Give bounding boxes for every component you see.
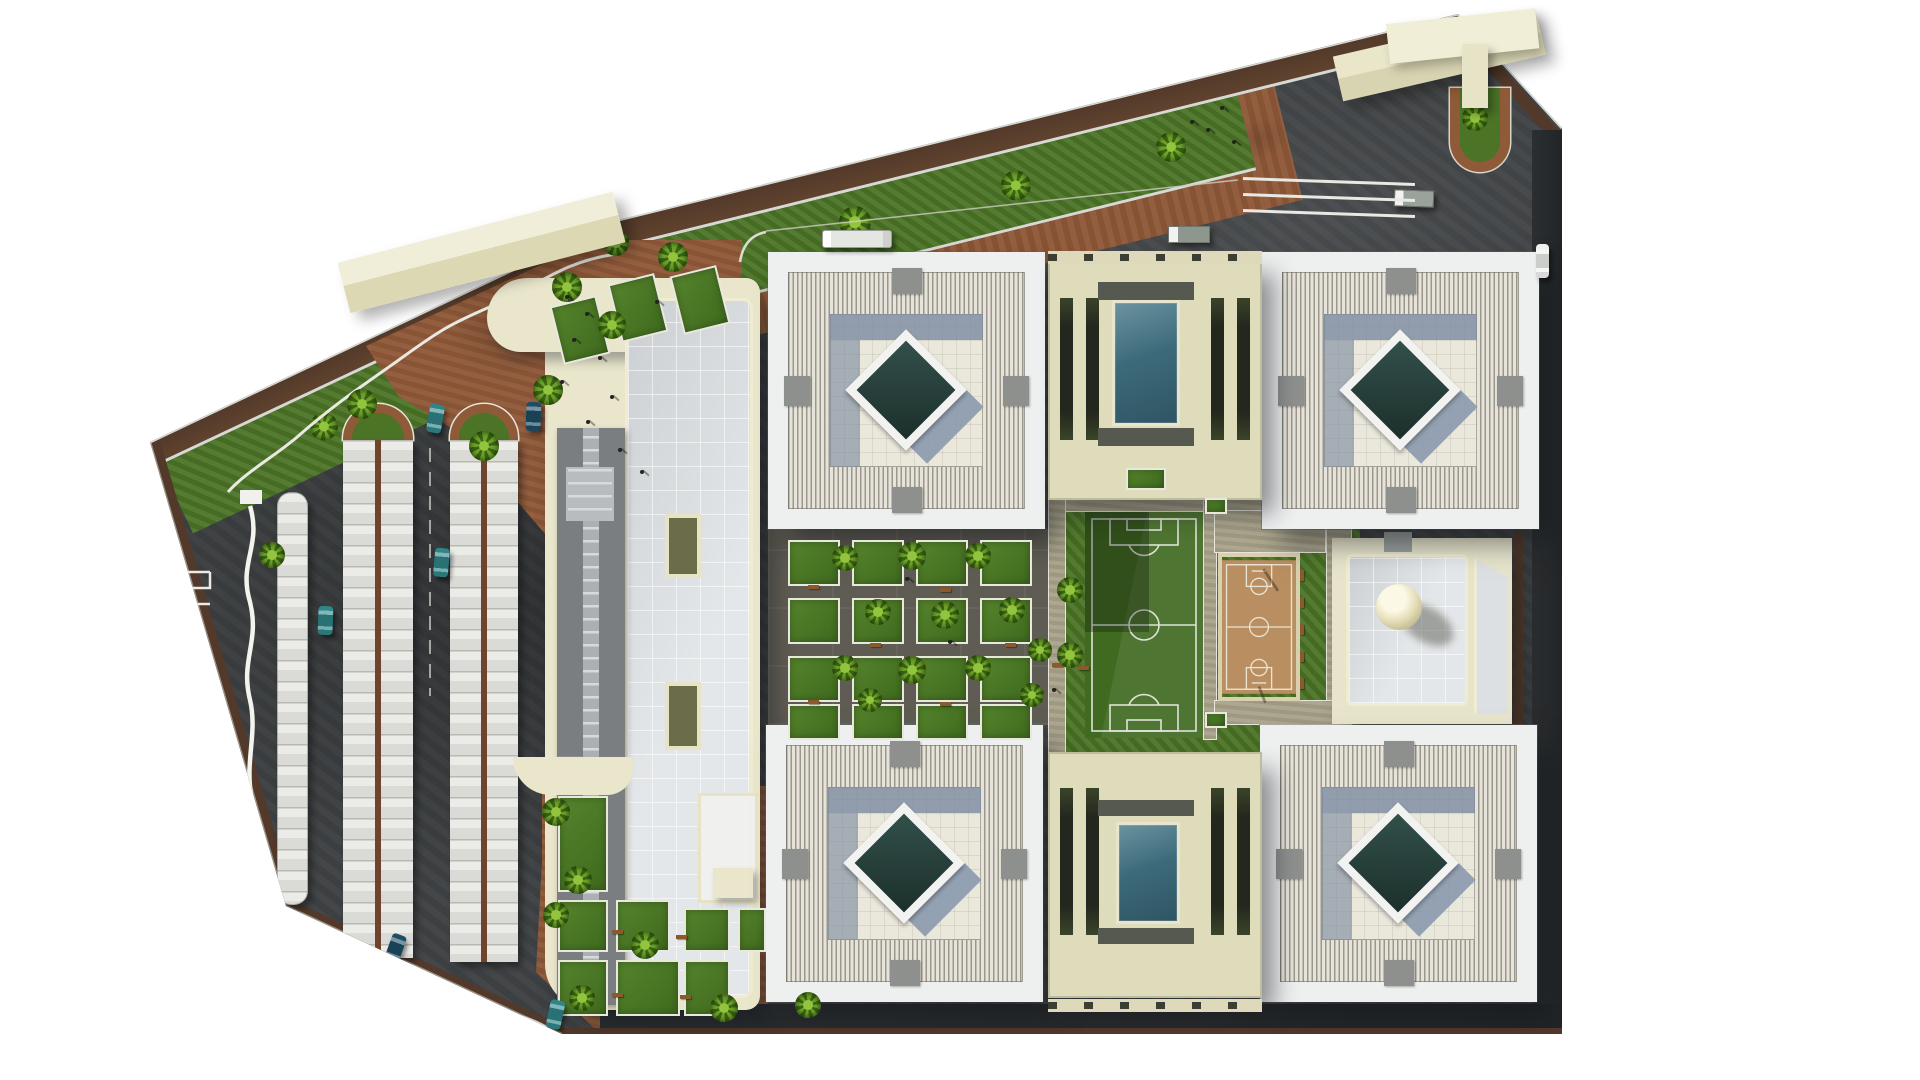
pedestrian (1190, 120, 1194, 124)
pedestrian (1232, 140, 1236, 144)
pedestrian (1052, 688, 1056, 692)
pedestrian (655, 300, 659, 304)
site-plan-render (0, 0, 1920, 1080)
pedestrian (560, 380, 564, 384)
pedestrian (1206, 128, 1210, 132)
pedestrian (572, 338, 576, 342)
site-boundary (0, 0, 1920, 1080)
pedestrian (586, 420, 590, 424)
walkway-canopy (1462, 44, 1488, 108)
pedestrian (948, 640, 952, 644)
pedestrian (610, 395, 614, 399)
pedestrian (585, 312, 589, 316)
pedestrian (905, 577, 909, 581)
pedestrian (1220, 106, 1224, 110)
pedestrian (618, 448, 622, 452)
pedestrian (598, 356, 602, 360)
pedestrian (640, 470, 644, 474)
people-layer (0, 0, 1920, 1080)
pedestrian (565, 295, 569, 299)
